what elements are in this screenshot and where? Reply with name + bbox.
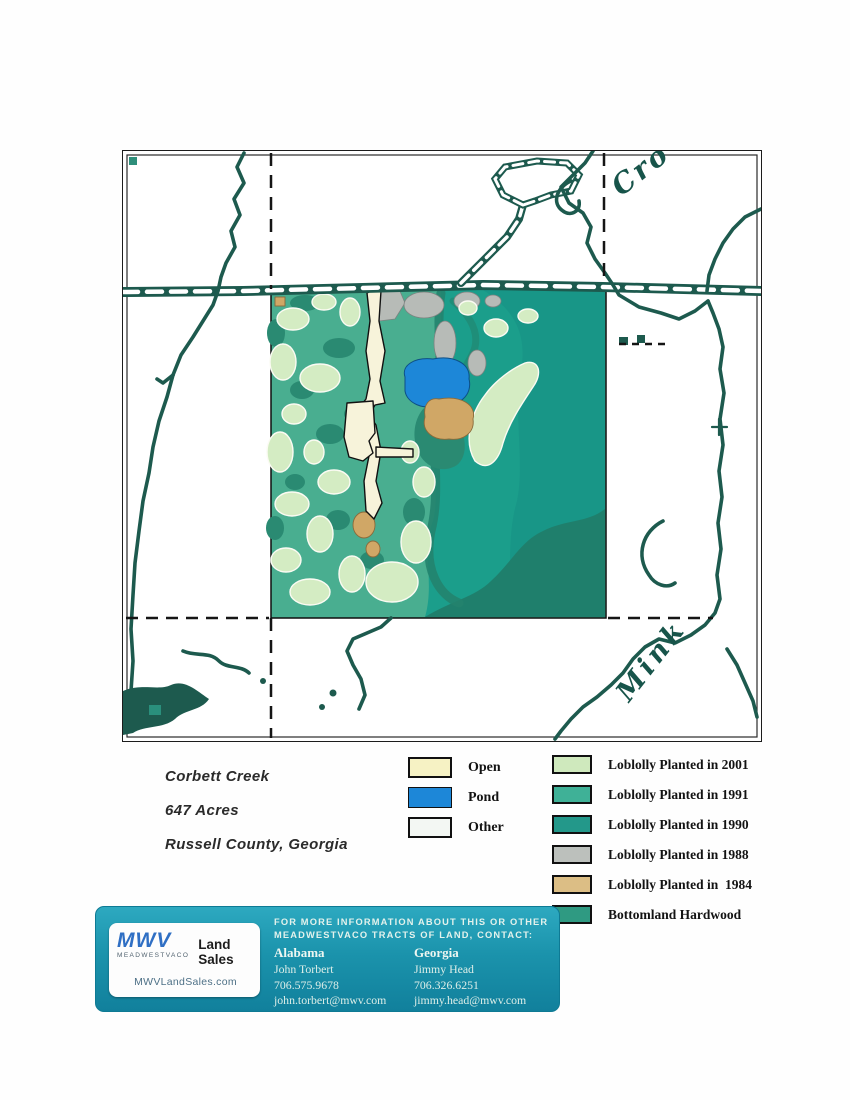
contact-region: Alabama [274,945,414,961]
legend-swatch-other [408,817,452,838]
legend-item-open: Open [408,757,504,778]
legend-item-2001: Loblolly Planted in 2001 [552,755,752,774]
footer-heading-line1: FOR MORE INFORMATION ABOUT THIS OR OTHER [274,916,554,929]
scanned-land-sale-flyer: Cro Mink Corbett Creek 647 Acres Russell… [0,0,850,1100]
legend-label-1991: Loblolly Planted in 1991 [608,787,749,803]
land-sales-label: Land Sales [198,937,254,967]
contact-name: Jimmy Head [414,962,554,978]
website-link: MWVLandSales.com [117,976,254,988]
mwv-company-name: MEADWESTVACO [117,952,189,959]
creek-label-mink: Mink [609,614,692,708]
legend-swatch-open [408,757,452,778]
legend-item-other: Other [408,817,504,838]
legend-swatch-1984 [552,875,592,894]
footer-heading-line2: MEADWESTVACO TRACTS OF LAND, CONTACT: [274,929,554,942]
legend-label-1984: Loblolly Planted in 1984 [608,877,752,893]
contact-georgia: Georgia Jimmy Head 706.326.6251 jimmy.he… [414,945,554,1009]
contact-email: john.torbert@mwv.com [274,993,414,1009]
map-frame: Cro Mink [122,150,762,742]
creek-label-cro: Cro [605,151,676,203]
legend-label-1988: Loblolly Planted in 1988 [608,847,749,863]
legend-swatch-pond [408,787,452,808]
contact-phone: 706.326.6251 [414,978,554,994]
footer-banner: MWV MEADWESTVACO Land Sales MWVLandSales… [95,906,560,1012]
legend-label-other: Other [468,820,504,836]
legend-label-bottomland: Bottomland Hardwood [608,907,741,923]
legend-item-bottomland: Bottomland Hardwood [552,905,752,924]
contact-name: John Torbert [274,962,414,978]
legend-item-1991: Loblolly Planted in 1991 [552,785,752,804]
contact-phone: 706.575.9678 [274,978,414,994]
footer-contact-info: FOR MORE INFORMATION ABOUT THIS OR OTHER… [274,916,554,1009]
property-name: Corbett Creek [165,768,348,785]
legend-label-pond: Pond [468,790,499,806]
property-location: Russell County, Georgia [165,836,348,853]
legend-label-1990: Loblolly Planted in 1990 [608,817,749,833]
mwv-logo: MWV [117,931,189,951]
contact-alabama: Alabama John Torbert 706.575.9678 john.t… [274,945,414,1009]
property-info: Corbett Creek 647 Acres Russell County, … [165,768,348,870]
legend-item-1988: Loblolly Planted in 1988 [552,845,752,864]
legend-item-1984: Loblolly Planted in 1984 [552,875,752,894]
property-acres: 647 Acres [165,802,348,819]
contact-email: jimmy.head@mwv.com [414,993,554,1009]
property-tract [266,289,606,618]
legend-swatch-1988 [552,845,592,864]
legend-label-open: Open [468,760,501,776]
legend-swatch-1990 [552,815,592,834]
mwv-logo-card: MWV MEADWESTVACO Land Sales MWVLandSales… [109,923,260,997]
legend-stands: Loblolly Planted in 2001 Loblolly Plante… [552,755,752,935]
map-canvas: Cro Mink [123,151,761,741]
roads [123,161,761,292]
legend-landcover: Open Pond Other [408,757,504,847]
legend-swatch-1991 [552,785,592,804]
contact-region: Georgia [414,945,554,961]
legend-item-1990: Loblolly Planted in 1990 [552,815,752,834]
legend-swatch-2001 [552,755,592,774]
legend-label-2001: Loblolly Planted in 2001 [608,757,749,773]
map-corner-mark [129,157,137,165]
legend-item-pond: Pond [408,787,504,808]
